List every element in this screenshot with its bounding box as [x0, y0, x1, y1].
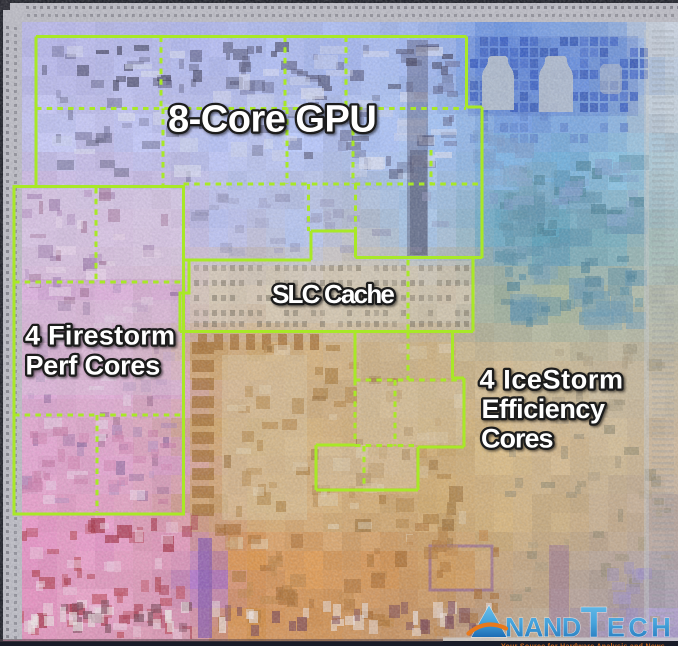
svg-text:Efficiency: Efficiency: [482, 394, 605, 424]
svg-text:8-Core GPU: 8-Core GPU: [168, 99, 376, 141]
svg-text:SLC Cache: SLC Cache: [272, 279, 394, 309]
svg-text:4 IceStorm: 4 IceStorm: [480, 365, 624, 395]
svg-text:4 Firestorm: 4 Firestorm: [25, 321, 175, 351]
svg-text:Cores: Cores: [481, 424, 553, 454]
svg-text:Perf Cores: Perf Cores: [26, 351, 161, 381]
